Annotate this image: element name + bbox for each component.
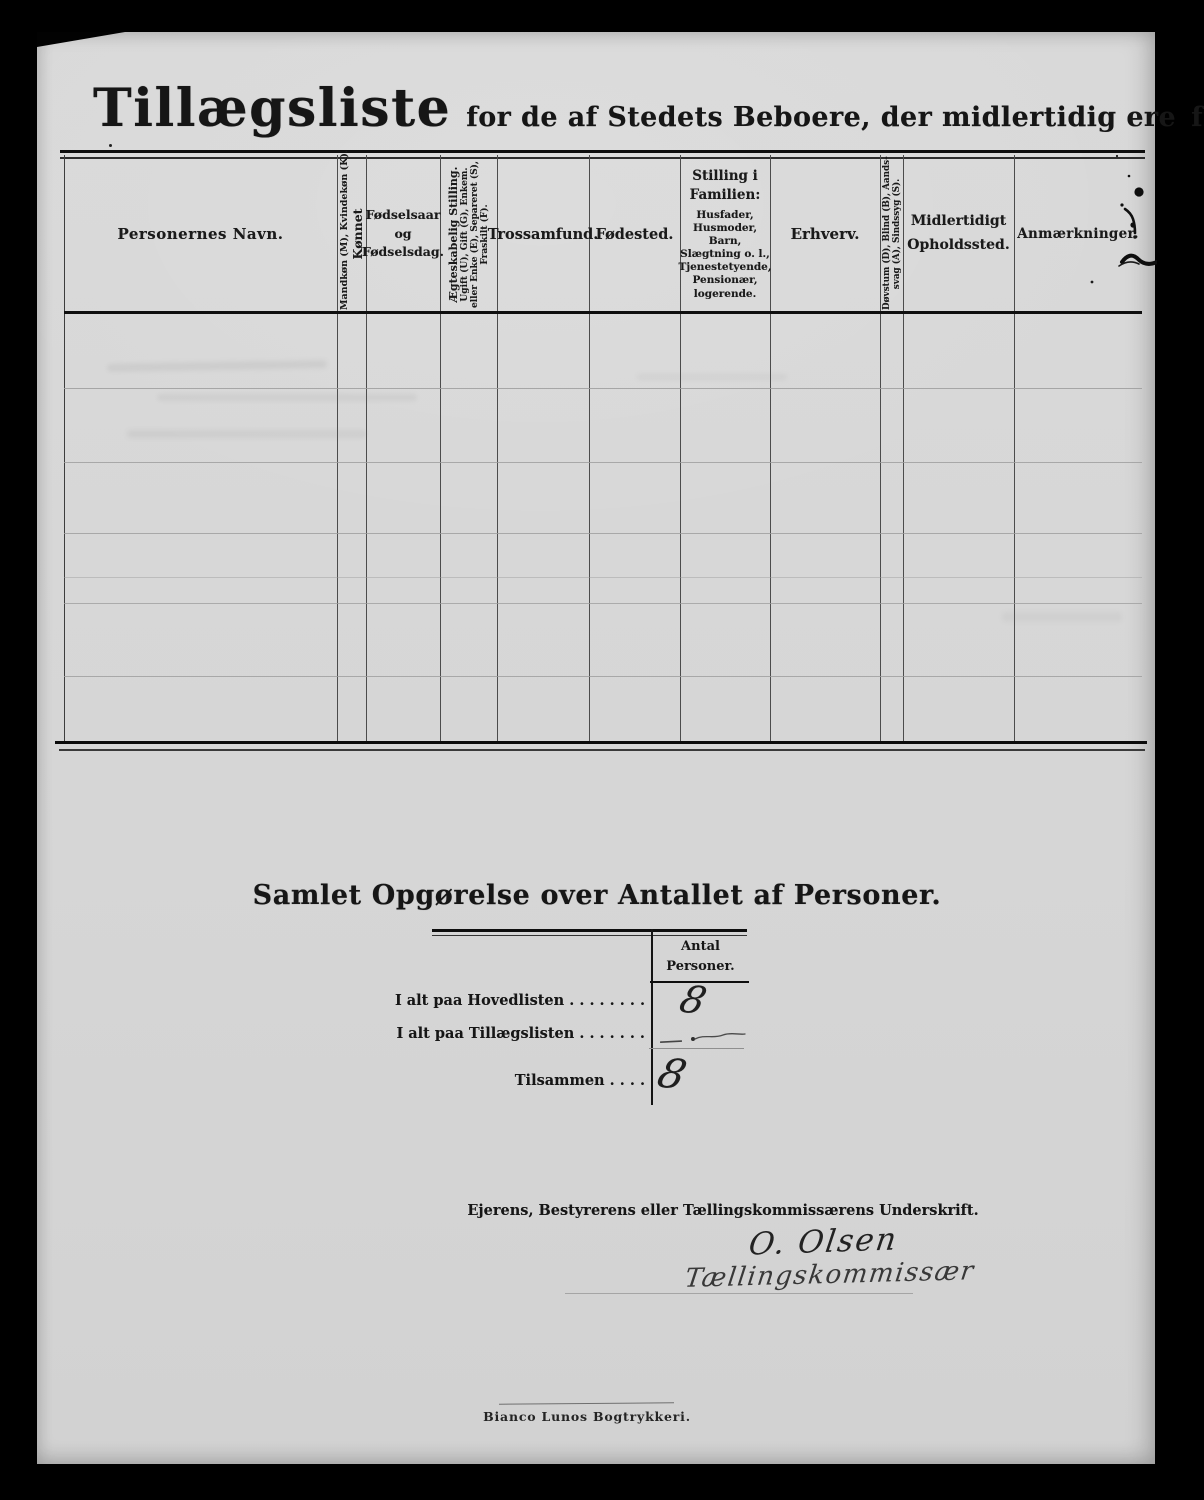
col-header-disability-rotated: Døvstum (D), Blind (B), Aands- svag (A),… bbox=[882, 158, 902, 310]
summary-row-leader: . . . . . . . bbox=[579, 1025, 645, 1042]
col-header-family-sub: Husfader, Husmoder, Barn, Slægtning o. l… bbox=[677, 209, 774, 301]
summary-row-tillaegslisten: I alt paa Tillægslisten . . . . . . . bbox=[297, 1025, 645, 1042]
summary-row-label: I alt paa Tillægslisten bbox=[396, 1025, 574, 1042]
handwritten-value-hovedlisten: 8 bbox=[675, 977, 711, 1023]
form-title: Tillægsliste bbox=[93, 78, 451, 139]
col-header-occupation: Erhverv. bbox=[770, 155, 880, 313]
summary-heading: Samlet Opgørelse over Antallet af Person… bbox=[77, 880, 1117, 911]
table-row-line bbox=[64, 533, 1142, 534]
col-header-disability: Døvstum (D), Blind (B), Aands- svag (A),… bbox=[880, 155, 903, 313]
col-header-marital-sub2: eller Enke (E), Separeret (S), bbox=[470, 160, 480, 307]
ink-speck bbox=[109, 144, 112, 147]
table-row-line bbox=[64, 577, 1142, 578]
signature-line bbox=[565, 1293, 913, 1294]
col-header-name-label: Personernes Navn. bbox=[117, 225, 283, 243]
scan-background: Tillægsliste for de af Stedets Beboere, … bbox=[0, 0, 1204, 1500]
col-header-faith: Trossamfund. bbox=[497, 155, 589, 313]
bleed-through-mark bbox=[1002, 612, 1122, 622]
handwritten-dash-flourish bbox=[687, 1030, 749, 1044]
col-header-marital-main: Ægteskabelig Stilling. bbox=[447, 160, 460, 307]
col-header-birth-label: Fødselsaar og Fødselsdag. bbox=[362, 206, 444, 262]
form-subtitle: for de af Stedets Beboere, der midlertid… bbox=[466, 102, 1176, 133]
paper-corner-shadow bbox=[37, 32, 125, 47]
col-header-sex-sub: Mandkøn (M), Kvindekøn (K). bbox=[339, 158, 350, 310]
handwritten-value-tilsammen: 8 bbox=[652, 1049, 691, 1099]
ink-smudge bbox=[1067, 147, 1157, 297]
bleed-through-mark bbox=[637, 374, 787, 380]
table-row-line bbox=[64, 603, 1142, 604]
summary-row-leader: . . . . bbox=[610, 1072, 645, 1089]
table-bottom-rule-thin bbox=[59, 749, 1145, 751]
col-header-stay-label: Midlertidigt Opholdssted. bbox=[903, 210, 1014, 258]
summary-row-leader: . . . . . . . . bbox=[569, 992, 645, 1009]
bleed-through-mark bbox=[107, 360, 327, 372]
col-header-marital-rotated: Ægteskabelig Stilling. Ugift (U), Gift (… bbox=[447, 160, 490, 307]
summary-count-header-line1: Antal bbox=[653, 937, 748, 957]
col-header-stay: Midlertidigt Opholdssted. bbox=[903, 155, 1014, 313]
table-row-line bbox=[64, 676, 1142, 677]
table-row-line bbox=[64, 462, 1142, 463]
col-header-disability-line2: svag (A), Sindssyg (S). bbox=[892, 158, 902, 310]
col-header-occupation-label: Erhverv. bbox=[791, 225, 860, 243]
signature-label: Ejerens, Bestyrerens eller Tællingskommi… bbox=[373, 1202, 1073, 1219]
table-bottom-rule-thick bbox=[55, 741, 1147, 744]
summary-row-tilsammen: Tilsammen . . . . bbox=[297, 1072, 645, 1089]
col-header-birthplace-label: Fødested. bbox=[596, 226, 674, 243]
summary-top-rule-thin bbox=[432, 935, 747, 936]
form-title-row: Tillægsliste for de af Stedets Beboere, … bbox=[93, 78, 1123, 139]
col-header-birthplace: Fødested. bbox=[589, 155, 680, 313]
signature-name-handwritten: O. Olsen bbox=[747, 1221, 901, 1262]
printer-imprint: Bianco Lunos Bogtrykkeri. bbox=[457, 1409, 717, 1424]
col-header-birth: Fødselsaar og Fødselsdag. bbox=[366, 155, 440, 313]
summary-row-label: I alt paa Hovedlisten bbox=[395, 992, 564, 1009]
summary-top-rule-thick bbox=[432, 929, 747, 932]
col-header-name: Personernes Navn. bbox=[64, 155, 337, 313]
summary-count-header: Antal Personer. bbox=[653, 937, 748, 977]
bleed-through-mark bbox=[157, 394, 417, 401]
bleed-through-mark bbox=[127, 430, 367, 438]
summary-row-label: Tilsammen bbox=[515, 1072, 605, 1089]
summary-count-header-line2: Personer. bbox=[653, 957, 748, 977]
title-rule-thick bbox=[60, 150, 1145, 153]
col-header-faith-label: Trossamfund. bbox=[488, 226, 599, 243]
summary-row-hovedlisten: I alt paa Hovedlisten . . . . . . . . bbox=[297, 992, 645, 1009]
col-header-family: Stilling i Familien: Husfader, Husmoder,… bbox=[680, 155, 770, 313]
col-header-sex-rotated: Mandkøn (M), Kvindekøn (K). Kønnet bbox=[339, 158, 365, 310]
form-subtitle-emphasis: fraværende. bbox=[1191, 102, 1204, 133]
col-header-disability-line1: Døvstum (D), Blind (B), Aands- bbox=[882, 158, 892, 310]
table-row-line bbox=[64, 388, 1142, 389]
printer-rule bbox=[499, 1402, 674, 1405]
signature-role-handwritten: Tællingskommissær bbox=[683, 1256, 976, 1294]
col-header-family-main: Stilling i Familien: bbox=[680, 167, 770, 203]
col-header-marital-sub1: Ugift (U), Gift (G), Enkem. bbox=[460, 160, 470, 307]
scanned-form-page: Tillægsliste for de af Stedets Beboere, … bbox=[37, 32, 1155, 1464]
